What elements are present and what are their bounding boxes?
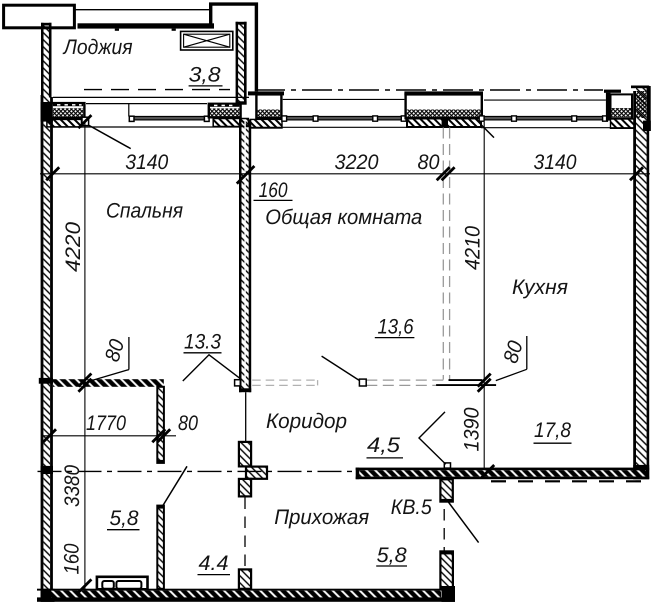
svg-text:3220: 3220 [335, 151, 379, 174]
svg-text:5,8: 5,8 [377, 544, 407, 567]
svg-text:160: 160 [259, 179, 288, 202]
svg-text:3,8: 3,8 [189, 64, 221, 87]
svg-text:4210: 4210 [462, 226, 485, 270]
svg-text:4.4: 4.4 [199, 552, 229, 575]
svg-text:4,5: 4,5 [367, 434, 400, 457]
svg-text:160: 160 [61, 543, 84, 574]
svg-text:Лоджия: Лоджия [62, 36, 133, 59]
svg-text:3380: 3380 [61, 465, 84, 507]
svg-text:Общая комната: Общая комната [265, 206, 422, 229]
svg-text:1770: 1770 [86, 412, 126, 435]
svg-text:Прихожая: Прихожая [274, 506, 369, 529]
svg-text:80: 80 [178, 412, 198, 435]
svg-text:13,6: 13,6 [378, 316, 414, 339]
svg-text:1390: 1390 [461, 407, 484, 451]
svg-text:4220: 4220 [62, 222, 85, 272]
svg-text:Кухня: Кухня [512, 276, 568, 299]
svg-text:Коридор: Коридор [266, 410, 347, 433]
svg-text:17,8: 17,8 [534, 419, 571, 442]
svg-text:13.3: 13.3 [184, 331, 221, 354]
svg-text:Спальня: Спальня [106, 200, 183, 223]
svg-text:80: 80 [418, 151, 440, 174]
svg-text:КВ.5: КВ.5 [391, 496, 432, 519]
svg-text:3140: 3140 [534, 151, 577, 174]
svg-text:5,8: 5,8 [110, 507, 139, 530]
svg-text:3140: 3140 [125, 151, 168, 174]
